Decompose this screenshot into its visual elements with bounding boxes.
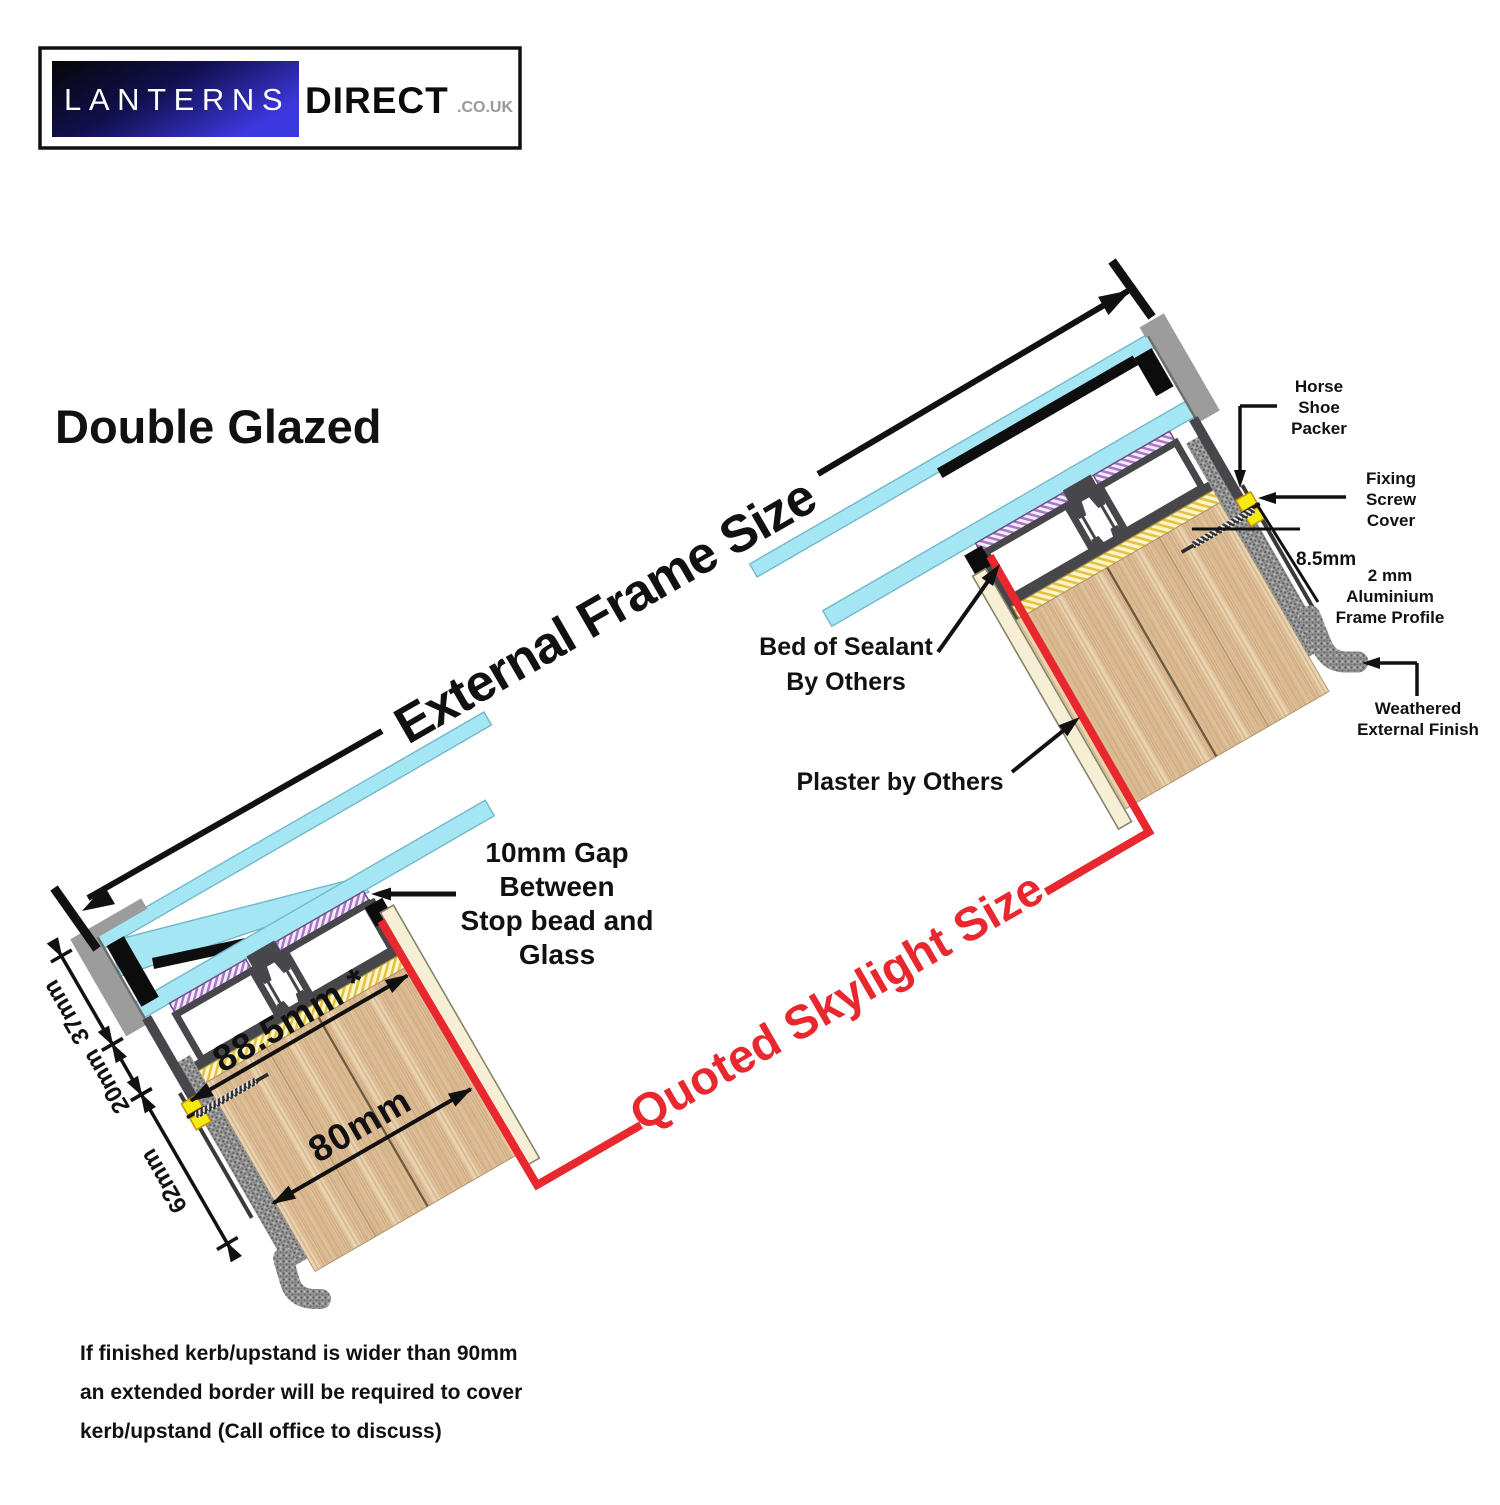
- svg-text:Shoe: Shoe: [1298, 398, 1340, 417]
- svg-text:an extended border will be req: an extended border will be required to c…: [80, 1381, 522, 1404]
- svg-text:.CO.UK: .CO.UK: [457, 99, 513, 116]
- svg-text:External Finish: External Finish: [1357, 720, 1479, 739]
- svg-text:Fixing: Fixing: [1366, 469, 1416, 488]
- svg-text:LANTERNS: LANTERNS: [64, 82, 290, 117]
- svg-text:2 mm: 2 mm: [1368, 566, 1412, 585]
- svg-text:8.5mm: 8.5mm: [1296, 549, 1356, 570]
- svg-text:Cover: Cover: [1367, 511, 1416, 530]
- svg-text:If finished kerb/upstand is wi: If finished kerb/upstand is wider than 9…: [80, 1342, 518, 1365]
- svg-text:Glass: Glass: [519, 939, 595, 970]
- svg-text:Stop bead and: Stop bead and: [461, 905, 654, 936]
- svg-text:By Others: By Others: [786, 668, 905, 696]
- svg-text:10mm Gap: 10mm Gap: [485, 837, 628, 868]
- svg-text:Plaster by Others: Plaster by Others: [796, 768, 1003, 796]
- svg-text:Horse: Horse: [1295, 377, 1343, 396]
- svg-text:DIRECT: DIRECT: [305, 80, 449, 121]
- svg-text:Weathered: Weathered: [1375, 699, 1462, 718]
- svg-text:Between: Between: [499, 871, 614, 902]
- svg-text:Packer: Packer: [1291, 419, 1347, 438]
- svg-text:kerb/upstand (Call office to d: kerb/upstand (Call office to discuss): [80, 1420, 442, 1443]
- svg-text:Double Glazed: Double Glazed: [55, 400, 381, 453]
- svg-text:Bed of Sealant: Bed of Sealant: [759, 633, 933, 661]
- svg-text:Screw: Screw: [1366, 490, 1417, 509]
- svg-text:Frame Profile: Frame Profile: [1336, 608, 1445, 627]
- svg-text:Aluminium: Aluminium: [1346, 587, 1434, 606]
